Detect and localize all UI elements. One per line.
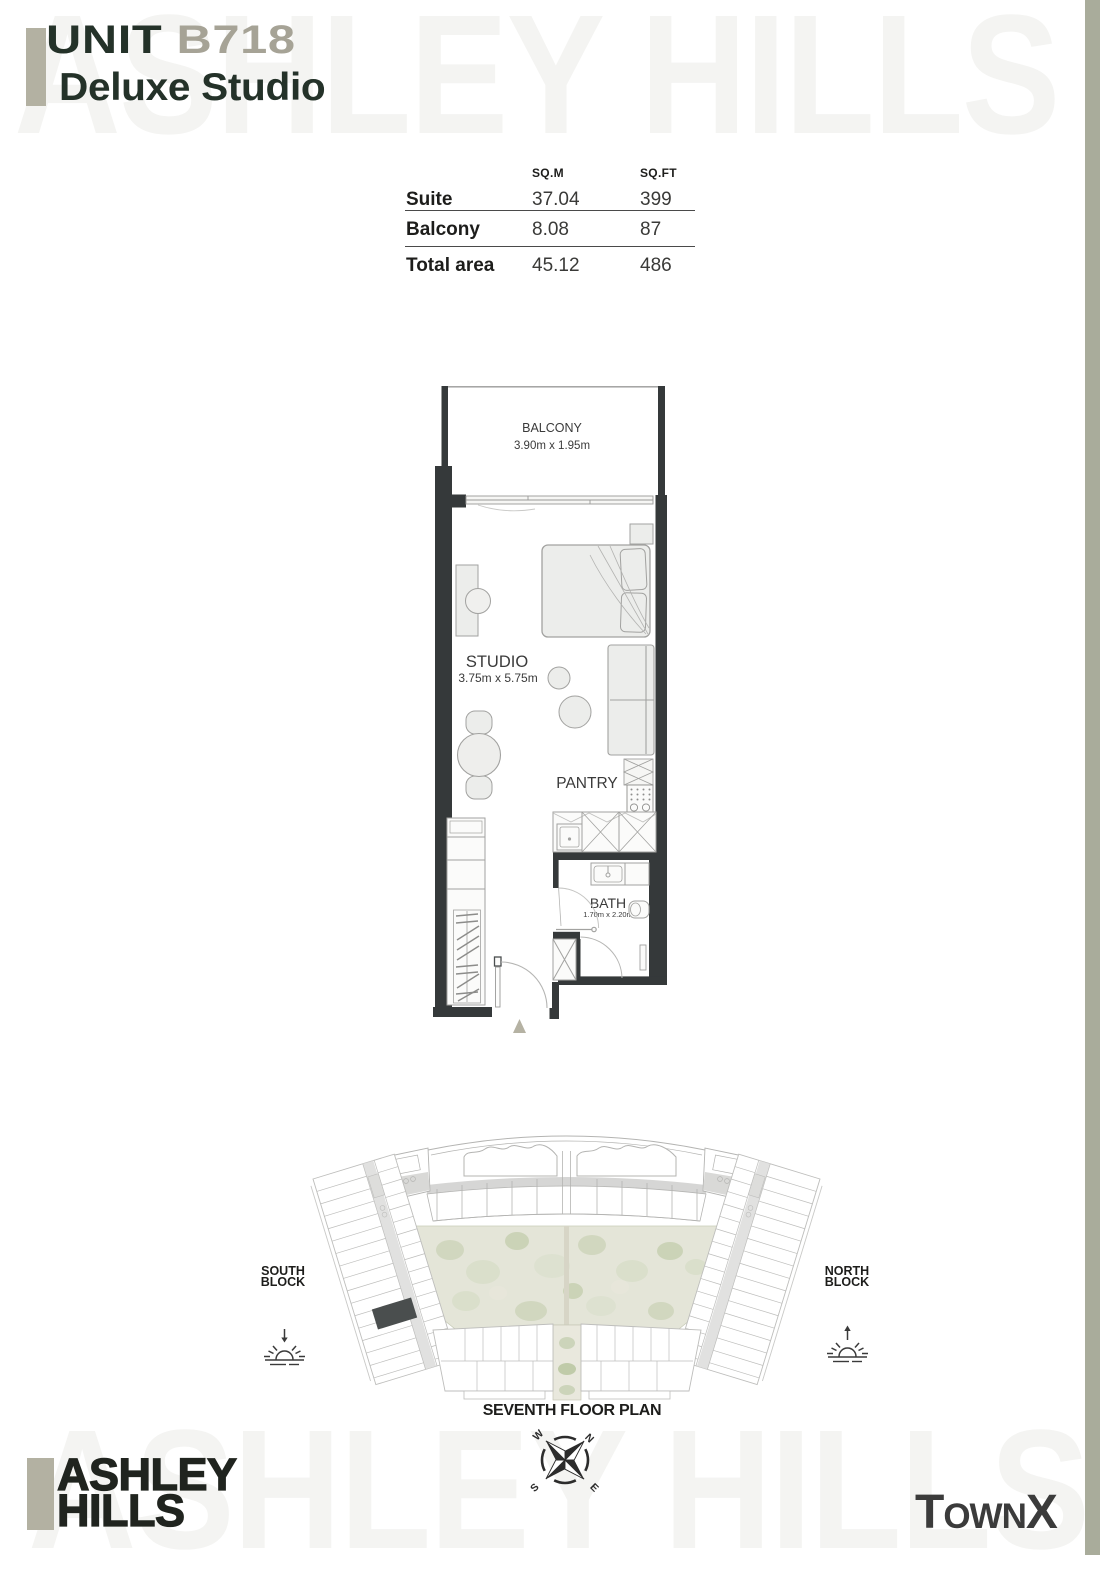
svg-text:E: E [587,1481,600,1494]
svg-text:S: S [528,1481,541,1494]
svg-text:W: W [531,1428,547,1444]
svg-text:PANTRY: PANTRY [556,775,617,792]
svg-text:STUDIO: STUDIO [466,653,529,671]
svg-text:BATH: BATH [590,895,626,911]
svg-text:3.90m x 1.95m: 3.90m x 1.95m [514,440,590,452]
svg-text:BALCONY: BALCONY [522,421,582,435]
svg-text:3.75m x 5.75m: 3.75m x 5.75m [458,671,537,685]
svg-text:1.70m x 2.20m: 1.70m x 2.20m [583,910,633,919]
svg-text:N: N [582,1431,596,1445]
